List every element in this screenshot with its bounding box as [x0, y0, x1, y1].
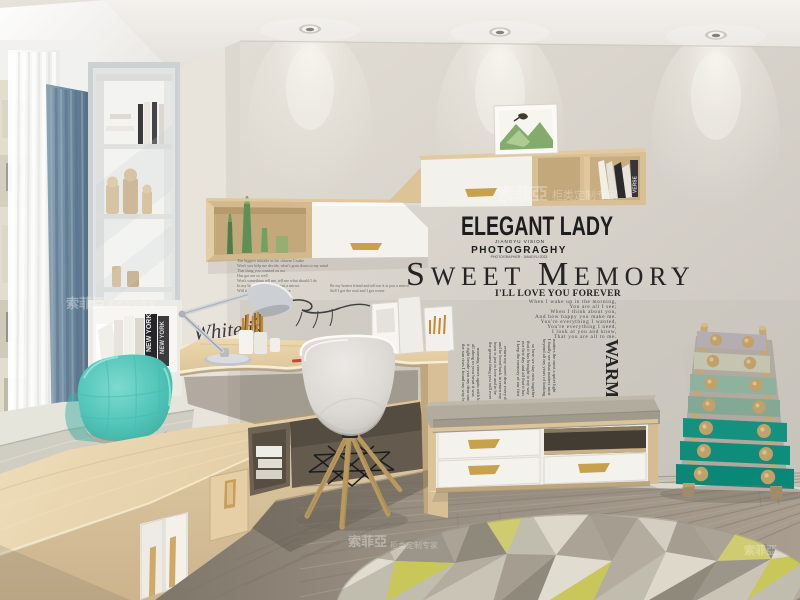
svg-text:Still I got the soul and I got: Still I got the soul and I got worse: [330, 288, 385, 293]
svg-text:morning comes again with love: morning comes again with love: [476, 348, 481, 406]
svg-text:柜类定制专家: 柜类定制专家: [390, 540, 438, 550]
svg-text:SWEET MEMORY: SWEET MEMORY: [406, 256, 695, 293]
svg-text:matters the most a quiet light: matters the most a quiet light: [552, 339, 557, 393]
svg-text:learn is just to love and to b: learn is just to love and to be: [493, 342, 498, 395]
svg-text:柜类定制专家: 柜类定制专家: [108, 299, 156, 309]
svg-text:I finally see what matters mos: I finally see what matters most: [547, 339, 552, 396]
svg-text:I'LL LOVE YOU FOREVER: I'LL LOVE YOU FOREVER: [495, 289, 621, 299]
svg-text:our first day and all that it: our first day and all that it has: [521, 341, 526, 396]
svg-text:JIANGYU VISION: JIANGYU VISION: [495, 239, 545, 244]
svg-text:I keep the memory of our first: I keep the memory of our first: [516, 341, 521, 397]
svg-text:索菲亞: 索菲亞: [744, 543, 777, 557]
svg-text:柜类定制专家: 柜类定制专家: [552, 188, 618, 202]
svg-text:that it has brought to my way: that it has brought to my way: [526, 341, 531, 396]
svg-text:the sun rises I found my way h: the sun rises I found my way home: [461, 344, 466, 408]
svg-text:beyond all my years of looking: beyond all my years of looking: [542, 339, 547, 397]
svg-text:索菲亞: 索菲亞: [497, 184, 548, 204]
svg-text:and be loved back in return my: and be loved back in return my: [498, 342, 503, 400]
svg-text:so here we stay now together: so here we stay now together: [531, 344, 536, 398]
svg-text:NEW YORK: NEW YORK: [160, 320, 166, 354]
svg-text:NEW YORK: NEW YORK: [146, 314, 153, 352]
svg-text:return my sweet dear every day: return my sweet dear every day: [503, 346, 508, 404]
svg-text:VERSE: VERSE: [633, 175, 639, 193]
svg-text:all along in your heart it was: all along in your heart it was: [471, 344, 476, 397]
svg-text:ELEGANT LADY: ELEGANT LADY: [461, 211, 613, 241]
svg-text:索菲亞: 索菲亞: [348, 534, 387, 549]
svg-text:it right beside you my dear on: it right beside you my dear one: [466, 344, 471, 401]
svg-text:the greatest thing you will ev: the greatest thing you will ever: [488, 342, 493, 399]
svg-text:索菲亞: 索菲亞: [66, 296, 105, 311]
